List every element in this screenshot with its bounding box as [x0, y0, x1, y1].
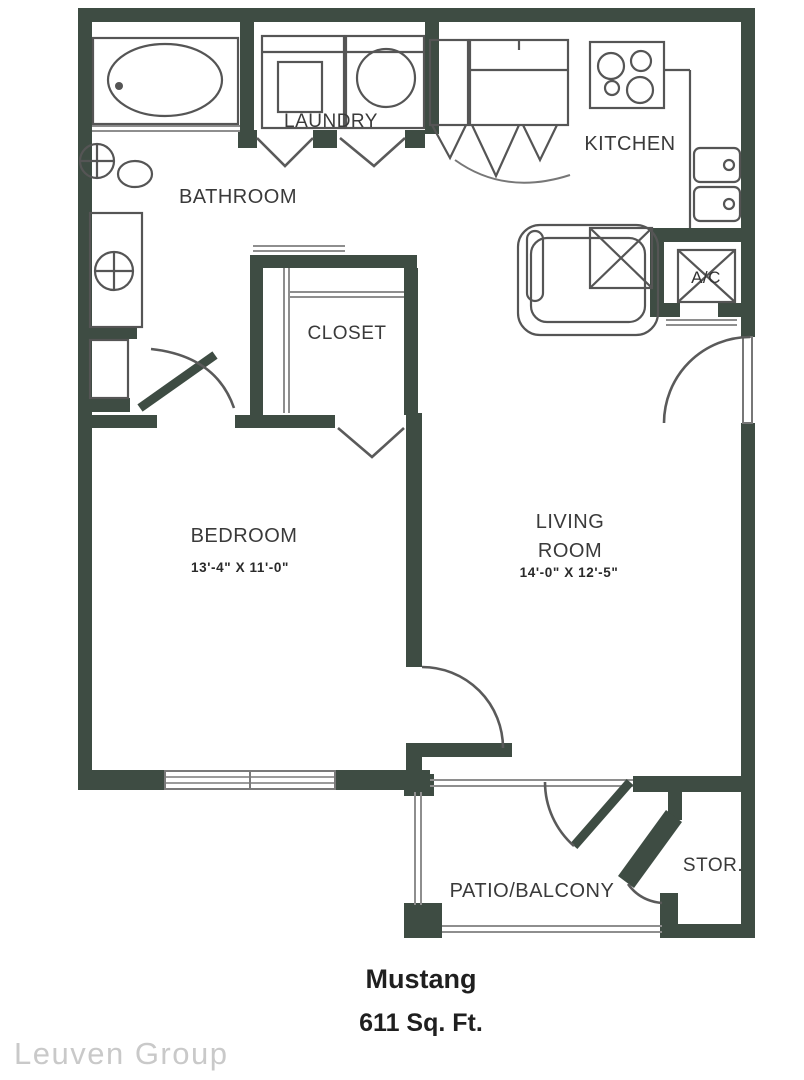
- bar-end-cap: [527, 231, 543, 301]
- wall-laundry-right-stub: [405, 130, 425, 148]
- laundry-bifold-door: [340, 138, 405, 166]
- cabinet-door-arc: [455, 160, 570, 183]
- patio-label: PATIO/BALCONY: [450, 880, 615, 902]
- wall-livingroom-bottom: [406, 743, 512, 757]
- patio-door-leaf: [574, 782, 630, 846]
- wall-patio-corner-bl: [404, 903, 442, 938]
- bedroom-dimensions: 13'-4" X 11'-0": [191, 560, 289, 575]
- stove-burner: [631, 51, 651, 71]
- fridge-door-swing: [523, 125, 557, 160]
- entry-door-leaf: [743, 337, 752, 423]
- wall-right-upper: [741, 8, 755, 337]
- wall-ac-stub-left: [650, 303, 680, 317]
- watermark: Leuven Group: [14, 1036, 228, 1072]
- wall-storage-bottom: [660, 924, 755, 938]
- wall-laundry-left-stub: [238, 130, 257, 148]
- living-room-label-line2: ROOM: [538, 540, 602, 562]
- wall-laundry-left: [240, 22, 254, 134]
- entry-door-swing: [664, 337, 750, 423]
- floor-plan-page: LAUNDRY BATHROOM KITCHEN A/C CLOSET BEDR…: [0, 0, 804, 1080]
- bathroom-door-swing: [151, 349, 234, 408]
- dryer-drum: [357, 49, 415, 107]
- closet-bifold-door: [338, 428, 404, 457]
- stove-burner: [627, 77, 653, 103]
- wall-ac-stub-right: [718, 303, 741, 317]
- refrigerator: [470, 40, 568, 125]
- kitchen-fixtures: [430, 40, 740, 335]
- wall-storage-top: [633, 776, 755, 792]
- plan-name: Mustang: [366, 964, 477, 994]
- wall-storage-diagonal: [618, 810, 682, 888]
- wall-patio-corner-tl: [404, 774, 434, 796]
- wall-ac-top: [650, 228, 741, 242]
- fridge-door-swing: [472, 125, 519, 176]
- toilet-bowl: [118, 161, 152, 187]
- living-room-label-line1: LIVING: [536, 511, 605, 533]
- wall-top: [78, 8, 755, 22]
- washer-tub: [278, 62, 322, 112]
- patio-door-swing: [545, 782, 574, 846]
- plan-title-block: Mustang 611 Sq. Ft.: [359, 964, 483, 1037]
- bedroom-label: BEDROOM: [191, 525, 298, 547]
- wall-bedroom-divider: [406, 413, 422, 667]
- kitchen-label: KITCHEN: [584, 133, 675, 155]
- wall-laundry-right: [425, 22, 439, 134]
- kitchen-sink-drain: [724, 160, 734, 170]
- wall-bathroom-bottom-right: [235, 415, 335, 428]
- kitchen-sink-drain: [724, 199, 734, 209]
- bathroom-label: BATHROOM: [179, 186, 297, 208]
- wall-closet-right: [404, 268, 418, 415]
- bedroom-door-swing: [422, 667, 503, 748]
- closet-label: CLOSET: [307, 323, 386, 344]
- bathroom-fixtures: [79, 38, 238, 398]
- plan-area: 611 Sq. Ft.: [359, 1009, 483, 1037]
- bathroom-door-leaf: [140, 355, 215, 408]
- wall-bathroom-bottom-left: [88, 415, 157, 428]
- wall-closet-left: [250, 255, 263, 415]
- wall-laundry-center-stub: [313, 130, 337, 148]
- storage-label: STOR.: [683, 855, 743, 876]
- stove-burner: [605, 81, 619, 95]
- bedroom-window: [165, 771, 335, 789]
- wall-closet-top: [253, 255, 417, 268]
- wall-bedroom-bottom-left: [78, 770, 165, 790]
- bathtub: [93, 38, 238, 124]
- stove-burner: [598, 53, 624, 79]
- laundry-bifold-door: [257, 138, 313, 166]
- wall-linen-bottom: [88, 398, 130, 412]
- laundry-label: LAUNDRY: [284, 111, 378, 132]
- ac-label: A/C: [691, 268, 721, 287]
- linen-cabinet: [90, 340, 128, 398]
- bathtub-drain: [115, 82, 123, 90]
- floor-plan-drawing: LAUNDRY BATHROOM KITCHEN A/C CLOSET BEDR…: [0, 0, 804, 1080]
- living-room-dimensions: 14'-0" X 12'-5": [520, 565, 619, 580]
